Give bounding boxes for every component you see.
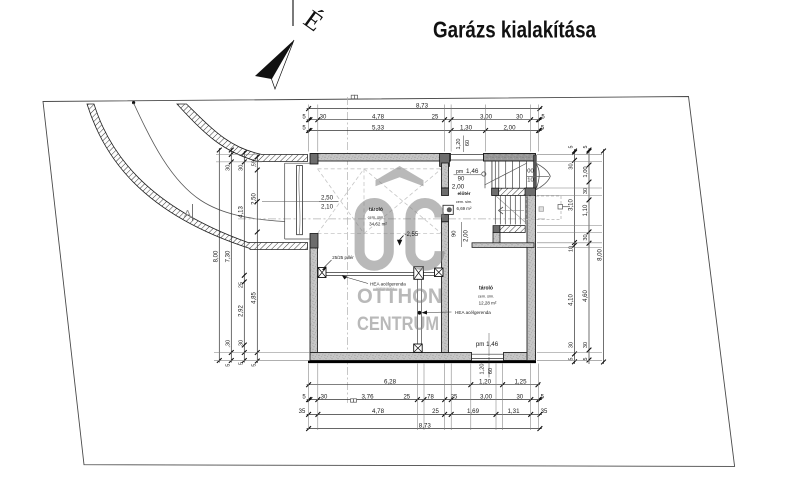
svg-text:5: 5 xyxy=(225,364,231,367)
svg-text:12,28 m²: 12,28 m² xyxy=(479,300,497,305)
svg-text:30: 30 xyxy=(569,163,575,169)
svg-text:tároló: tároló xyxy=(479,286,493,292)
svg-text:5: 5 xyxy=(238,362,244,365)
svg-text:30: 30 xyxy=(225,165,231,171)
svg-text:cem. sim.: cem. sim. xyxy=(478,294,494,298)
svg-text:5: 5 xyxy=(251,364,257,367)
svg-text:25/25 pillér: 25/25 pillér xyxy=(332,255,354,260)
svg-text:34,62 m²: 34,62 m² xyxy=(369,222,387,227)
svg-text:3,76: 3,76 xyxy=(361,393,374,400)
svg-text:8,00: 8,00 xyxy=(598,249,604,261)
svg-text:30: 30 xyxy=(569,342,575,348)
svg-text:60: 60 xyxy=(465,140,471,146)
svg-text:2,00: 2,00 xyxy=(503,124,516,131)
svg-text:A: A xyxy=(184,208,191,220)
svg-text:1,30: 1,30 xyxy=(460,124,473,131)
svg-text:25: 25 xyxy=(451,394,458,400)
svg-text:2,50: 2,50 xyxy=(251,193,257,205)
svg-text:1,10: 1,10 xyxy=(583,204,589,216)
svg-text:5: 5 xyxy=(583,146,589,149)
svg-text:5: 5 xyxy=(569,146,575,149)
svg-text:2,10: 2,10 xyxy=(321,204,334,211)
svg-text:OTTHON: OTTHON xyxy=(357,285,443,308)
svg-text:7,30: 7,30 xyxy=(225,250,231,262)
svg-text:előtér: előtér xyxy=(457,191,470,197)
svg-text:00: 00 xyxy=(527,169,533,175)
svg-text:-2,55: -2,55 xyxy=(405,232,419,238)
svg-text:cem. sim.: cem. sim. xyxy=(456,200,472,204)
svg-text:30: 30 xyxy=(516,394,523,400)
svg-text:cem. sim.: cem. sim. xyxy=(368,215,385,220)
svg-text:,59: ,59 xyxy=(251,160,257,167)
svg-text:30: 30 xyxy=(583,342,589,348)
svg-text:25: 25 xyxy=(432,409,439,415)
svg-text:4,85: 4,85 xyxy=(251,292,257,304)
svg-text:30: 30 xyxy=(583,188,589,194)
svg-text:4,10: 4,10 xyxy=(569,294,575,306)
svg-text:10: 10 xyxy=(569,246,575,252)
svg-text:pm: pm xyxy=(456,169,463,175)
svg-text:5: 5 xyxy=(569,358,575,361)
svg-text:Garázs kialakítása: Garázs kialakítása xyxy=(433,17,597,43)
svg-text:30: 30 xyxy=(320,115,327,121)
svg-text:30: 30 xyxy=(238,165,244,171)
svg-text:5: 5 xyxy=(583,358,589,361)
svg-text:60: 60 xyxy=(488,368,494,374)
svg-text:3,10: 3,10 xyxy=(569,199,575,211)
svg-text:90: 90 xyxy=(452,231,458,237)
svg-text:2,00: 2,00 xyxy=(464,230,470,242)
svg-text:6,69 m²: 6,69 m² xyxy=(457,206,472,211)
svg-text:4,13: 4,13 xyxy=(238,206,244,218)
svg-text:4,78: 4,78 xyxy=(372,408,385,415)
svg-text:25: 25 xyxy=(403,394,410,400)
svg-text:acélgerenda: acélgerenda xyxy=(376,287,394,291)
svg-text:1,20: 1,20 xyxy=(479,379,492,386)
svg-text:30: 30 xyxy=(583,234,589,240)
svg-text:90: 90 xyxy=(458,177,465,183)
svg-text:tároló: tároló xyxy=(369,207,383,213)
svg-text:,30: ,30 xyxy=(225,340,231,348)
svg-text:35: 35 xyxy=(299,409,306,415)
svg-text:5,33: 5,33 xyxy=(372,124,385,131)
svg-text:2,00: 2,00 xyxy=(452,183,465,190)
svg-text:4,60: 4,60 xyxy=(583,290,589,302)
svg-text:1,00: 1,00 xyxy=(583,166,589,177)
svg-text:1,46: 1,46 xyxy=(466,168,479,175)
svg-text:1,20: 1,20 xyxy=(456,139,462,150)
svg-text:3,00: 3,00 xyxy=(480,114,493,121)
svg-text:2,92: 2,92 xyxy=(238,305,244,317)
svg-text:25: 25 xyxy=(432,115,439,121)
svg-text:25: 25 xyxy=(238,282,244,288)
svg-text:78: 78 xyxy=(427,394,434,400)
svg-text:35: 35 xyxy=(541,409,548,415)
svg-text:HEA acélgerenda: HEA acélgerenda xyxy=(370,281,406,286)
svg-text:1,20: 1,20 xyxy=(479,364,485,375)
svg-text:1,69: 1,69 xyxy=(467,408,480,415)
svg-text:6,28: 6,28 xyxy=(384,379,397,386)
svg-text:HEA acélgerenda: HEA acélgerenda xyxy=(455,310,491,315)
svg-text:4,78: 4,78 xyxy=(372,114,385,121)
svg-text:3,00: 3,00 xyxy=(480,393,493,400)
svg-text:pm 1,46: pm 1,46 xyxy=(476,341,499,348)
svg-text:,30: ,30 xyxy=(238,340,244,348)
svg-text:8,00: 8,00 xyxy=(213,250,219,262)
svg-text:1,25: 1,25 xyxy=(514,379,527,386)
svg-text:30: 30 xyxy=(516,115,523,121)
svg-text:2,50: 2,50 xyxy=(321,195,334,202)
svg-text:CENTRUM: CENTRUM xyxy=(357,313,439,335)
svg-text:10: 10 xyxy=(527,178,533,184)
svg-text:30: 30 xyxy=(321,394,328,400)
svg-text:1,31: 1,31 xyxy=(507,408,520,415)
